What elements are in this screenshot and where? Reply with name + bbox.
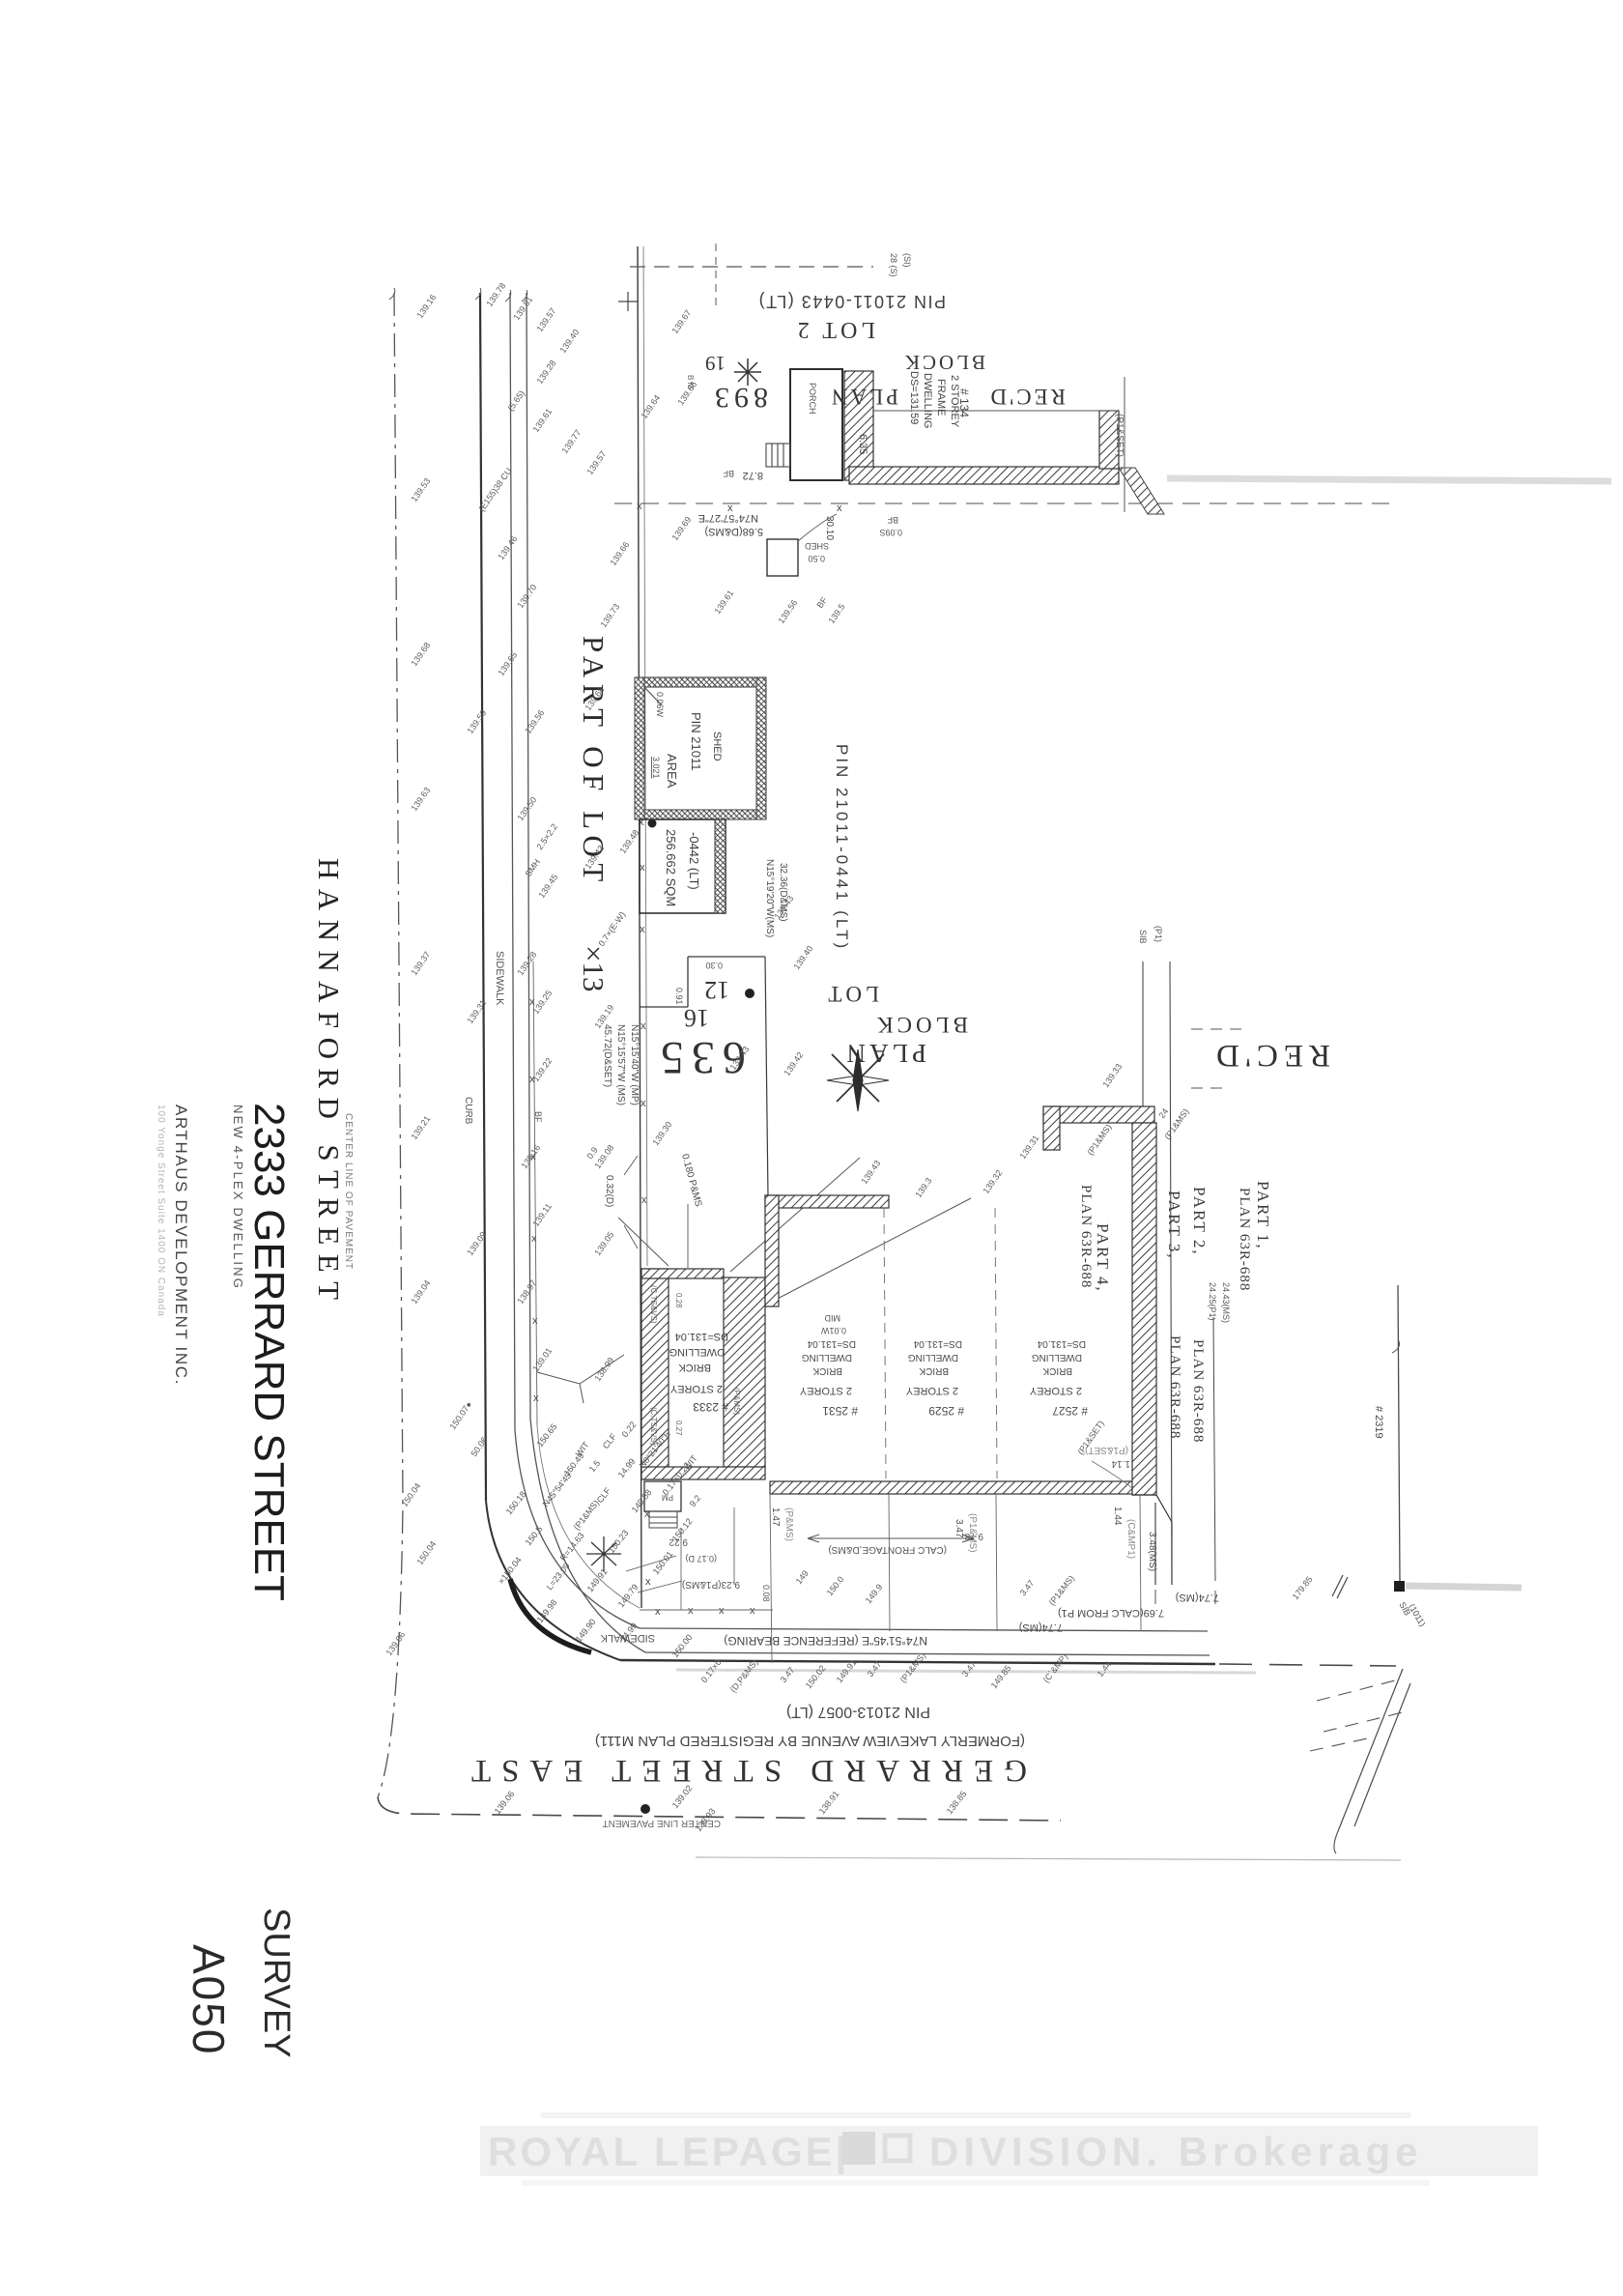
svg-text:DWELLING: DWELLING <box>908 1352 958 1363</box>
svg-text:12: 12 <box>704 976 729 1004</box>
svg-text:PIN 21011-0441 (LT): PIN 21011-0441 (LT) <box>833 744 851 951</box>
svg-text:(CALC FRONTAGE,D&MS): (CALC FRONTAGE,D&MS) <box>828 1544 947 1555</box>
svg-text:2 STOREY: 2 STOREY <box>799 1385 852 1396</box>
svg-text:PART 1,: PART 1, <box>1254 1181 1272 1250</box>
svg-text:x: x <box>641 1098 646 1109</box>
svg-text:N15°15'40"W (MP): N15°15'40"W (MP) <box>629 1024 640 1105</box>
svg-text:DS=131.04: DS=131.04 <box>913 1338 962 1349</box>
svg-text:LOT 2: LOT 2 <box>794 317 875 342</box>
svg-text:0.28: 0.28 <box>674 1293 683 1308</box>
svg-text:MID: MID <box>824 1313 840 1323</box>
svg-text:x: x <box>750 1605 755 1617</box>
svg-text:N15°15'57"W (MS): N15°15'57"W (MS) <box>615 1024 626 1105</box>
svg-text:0.06W: 0.06W <box>655 692 665 718</box>
svg-text:2 STOREY: 2 STOREY <box>905 1385 958 1396</box>
svg-text:x: x <box>532 1315 538 1327</box>
svg-text:AREA: AREA <box>665 754 679 789</box>
svg-text:(P1): (P1) <box>1153 926 1163 942</box>
svg-text:FRAME: FRAME <box>935 379 947 416</box>
svg-text:0.91: 0.91 <box>674 988 684 1005</box>
svg-text:893: 893 <box>710 382 768 414</box>
svg-text:7.74(MS): 7.74(MS) <box>1176 1592 1219 1603</box>
svg-text:BF: BF <box>887 515 898 525</box>
svg-text:BLOCK: BLOCK <box>873 1013 968 1037</box>
svg-text:3.021: 3.021 <box>651 757 661 779</box>
svg-text:PLAN 63R-688: PLAN 63R-688 <box>1190 1339 1206 1443</box>
svg-text:2 STOREY: 2 STOREY <box>669 1383 723 1394</box>
svg-text:PORCH: PORCH <box>808 383 817 415</box>
svg-text:# 2529: # 2529 <box>928 1404 964 1418</box>
svg-text:2 STOREY: 2 STOREY <box>1029 1385 1082 1396</box>
svg-text:DIVISION. Brokerage: DIVISION. Brokerage <box>929 2129 1422 2174</box>
svg-text:PLAN 63R-688: PLAN 63R-688 <box>1237 1188 1252 1291</box>
svg-text:(SI): (SI) <box>902 253 912 268</box>
svg-text:SHED: SHED <box>711 732 723 761</box>
svg-text:x: x <box>640 862 645 874</box>
svg-text:0.08: 0.08 <box>761 1585 771 1602</box>
svg-text:DS=131.04: DS=131.04 <box>675 1331 728 1342</box>
svg-text:0.09S: 0.09S <box>879 528 902 537</box>
svg-text:×13: ×13 <box>577 945 611 991</box>
svg-text:DWELLING: DWELLING <box>922 373 933 428</box>
svg-text:PLAN: PLAN <box>829 385 898 409</box>
svg-text:(P&MS): (P&MS) <box>783 1507 794 1541</box>
svg-text:(C.TS&VS): (C.TS&VS) <box>649 1285 658 1324</box>
svg-text:N74°51'45"E (REFERENCE BEARIN: N74°51'45"E (REFERENCE BEARING) <box>724 1634 927 1648</box>
svg-text:DS=131.04: DS=131.04 <box>807 1338 856 1349</box>
svg-text:SIB: SIB <box>1138 930 1148 944</box>
svg-text:6.35: 6.35 <box>857 434 868 454</box>
svg-text:1.47: 1.47 <box>770 1507 781 1527</box>
svg-text:PART 3,: PART 3, <box>1165 1191 1183 1260</box>
svg-text:BLOCK: BLOCK <box>902 351 985 374</box>
svg-text:x: x <box>641 1194 647 1206</box>
svg-text:x: x <box>533 1392 539 1404</box>
svg-text:0.30: 0.30 <box>705 961 723 970</box>
svg-text:ROYAL LEPAGE|: ROYAL LEPAGE| <box>488 2129 849 2175</box>
svg-text:PART 2,: PART 2, <box>1190 1187 1209 1256</box>
svg-text:REC'D: REC'D <box>1210 1038 1330 1073</box>
svg-text:# 2527: # 2527 <box>1052 1404 1088 1418</box>
svg-text:256.662 SQM: 256.662 SQM <box>664 829 678 906</box>
svg-text:SIDEWALK: SIDEWALK <box>494 951 505 1006</box>
svg-text:SHED: SHED <box>804 541 829 551</box>
svg-text:(P1&SET): (P1&SET) <box>1085 1445 1128 1455</box>
svg-text:2333 GERRARD STREET: 2333 GERRARD STREET <box>245 1103 293 1601</box>
svg-text:(C&MP1): (C&MP1) <box>1125 1519 1136 1559</box>
svg-text:x: x <box>641 1020 646 1032</box>
svg-text:PIN 21011-0443 (LT): PIN 21011-0443 (LT) <box>757 292 946 311</box>
svg-text:DS=131.59: DS=131.59 <box>908 371 920 424</box>
svg-text:SURVEY: SURVEY <box>256 1908 297 2058</box>
svg-text:x: x <box>531 1233 537 1245</box>
svg-text:x: x <box>719 1605 725 1617</box>
svg-text:# 2333: # 2333 <box>693 1400 728 1414</box>
svg-text:(0.17 D): (0.17 D) <box>685 1554 717 1564</box>
svg-text:0.01W: 0.01W <box>820 1326 846 1335</box>
svg-text:GERRARD STREET EAST: GERRARD STREET EAST <box>461 1753 1027 1788</box>
svg-text:BRICK: BRICK <box>919 1365 949 1376</box>
svg-text:PART 4,: PART 4, <box>1094 1223 1112 1293</box>
svg-text:DWELLING: DWELLING <box>802 1352 852 1363</box>
svg-text:BF: BF <box>723 469 734 478</box>
svg-text:PLAN 63R-688: PLAN 63R-688 <box>1078 1185 1094 1288</box>
svg-text:ARTHAUS DEVELOPMENT INC.: ARTHAUS DEVELOPMENT INC. <box>172 1105 190 1386</box>
svg-text:PIN 21011: PIN 21011 <box>689 712 703 770</box>
svg-text:N15°19'20"W(MS): N15°19'20"W(MS) <box>764 859 775 937</box>
svg-text:0.50: 0.50 <box>808 554 825 563</box>
svg-text:5.68(D&MS): 5.68(D&MS) <box>704 526 763 537</box>
svg-text:x: x <box>655 1606 661 1618</box>
svg-text:7.69(CALC FROM P1): 7.69(CALC FROM P1) <box>1058 1607 1164 1619</box>
svg-text:x: x <box>645 1576 651 1588</box>
svg-text:DWELLING: DWELLING <box>669 1346 725 1358</box>
svg-text:PLAN 63R-688: PLAN 63R-688 <box>1167 1335 1182 1439</box>
svg-text:8.72: 8.72 <box>743 470 763 481</box>
svg-text:BRICK: BRICK <box>1042 1365 1072 1376</box>
svg-text:0.27: 0.27 <box>674 1421 683 1436</box>
svg-text:x: x <box>637 501 642 512</box>
svg-text:3.47: 3.47 <box>954 1519 964 1538</box>
svg-text:28 (S): 28 (S) <box>889 253 898 277</box>
svg-text:NEW 4-PLEX DWELLING: NEW 4-PLEX DWELLING <box>231 1105 245 1290</box>
svg-text:9.23(P1&MS): 9.23(P1&MS) <box>682 1579 740 1590</box>
svg-text:HANNAFORD STREET: HANNAFORD STREET <box>312 858 346 1308</box>
svg-text:(P1&SET): (P1&SET) <box>1114 414 1125 457</box>
svg-text:24.25(P1): 24.25(P1) <box>1208 1282 1217 1321</box>
svg-text:REC'D: REC'D <box>988 385 1067 409</box>
svg-text:19: 19 <box>705 352 726 375</box>
svg-text:DWELLING: DWELLING <box>1032 1352 1082 1363</box>
svg-text:1.14: 1.14 <box>1111 1458 1130 1469</box>
svg-text:635: 635 <box>653 1032 746 1083</box>
svg-text:DS=131.04: DS=131.04 <box>1037 1338 1086 1349</box>
svg-text:# 134: # 134 <box>957 388 971 417</box>
svg-text:CURB: CURB <box>463 1097 473 1125</box>
svg-text:BRICK: BRICK <box>812 1365 842 1376</box>
svg-text:BRICK: BRICK <box>678 1362 711 1373</box>
svg-text:# 2531: # 2531 <box>822 1404 858 1418</box>
svg-text:N74°57'27"E: N74°57'27"E <box>698 512 758 524</box>
svg-text:7.74(MS): 7.74(MS) <box>1019 1622 1063 1633</box>
svg-text:-0442 (LT): -0442 (LT) <box>687 832 701 890</box>
svg-text:30.10: 30.10 <box>824 516 835 540</box>
svg-text:PIN 21013-0057 (LT): PIN 21013-0057 (LT) <box>786 1704 930 1720</box>
svg-text:24.43(MS): 24.43(MS) <box>1221 1282 1231 1323</box>
svg-text:CENTER LINE OF PAVEMENT: CENTER LINE OF PAVEMENT <box>343 1113 354 1270</box>
svg-text:(P&MS): (P&MS) <box>732 1388 741 1415</box>
svg-text:x: x <box>837 502 842 514</box>
svg-text:x: x <box>688 1605 694 1617</box>
svg-text:100 Yonge Street Suite 1400 ON: 100 Yonge Street Suite 1400 ON Canada <box>156 1105 166 1317</box>
svg-text:1.44: 1.44 <box>1112 1507 1123 1526</box>
svg-text:A050: A050 <box>184 1944 234 2055</box>
svg-text:45.72(D&SET): 45.72(D&SET) <box>602 1024 612 1087</box>
svg-text:0.32(D): 0.32(D) <box>604 1175 614 1207</box>
svg-text:# 2319: # 2319 <box>1373 1406 1384 1439</box>
svg-text:(FORMERLY LAKEVIEW AVENUE BY R: (FORMERLY LAKEVIEW AVENUE BY REGISTERED … <box>595 1733 1025 1749</box>
svg-text:16: 16 <box>684 1004 709 1032</box>
svg-text:LOT: LOT <box>824 982 879 1006</box>
svg-text:BF: BF <box>533 1111 543 1123</box>
svg-text:x: x <box>640 924 645 935</box>
